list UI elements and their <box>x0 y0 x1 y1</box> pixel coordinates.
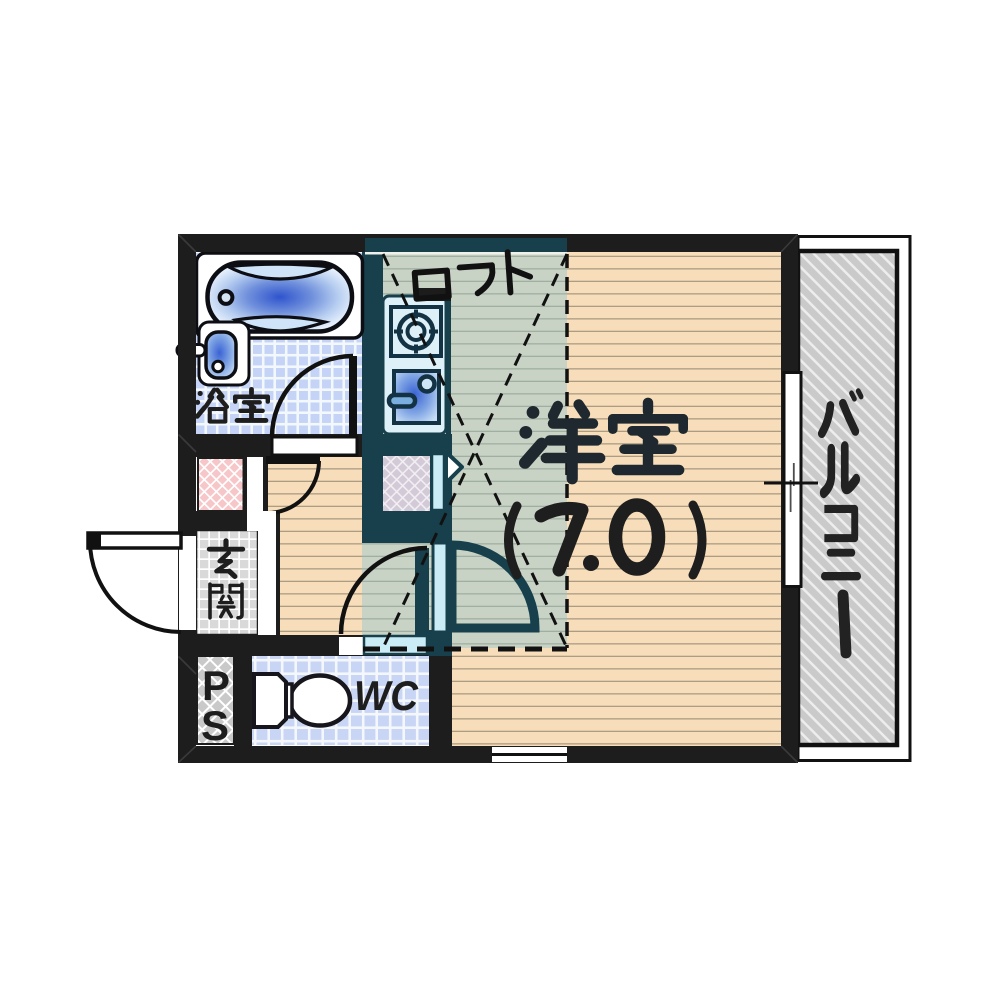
svg-text:S: S <box>201 702 229 749</box>
svg-text:WC: WC <box>354 672 419 719</box>
